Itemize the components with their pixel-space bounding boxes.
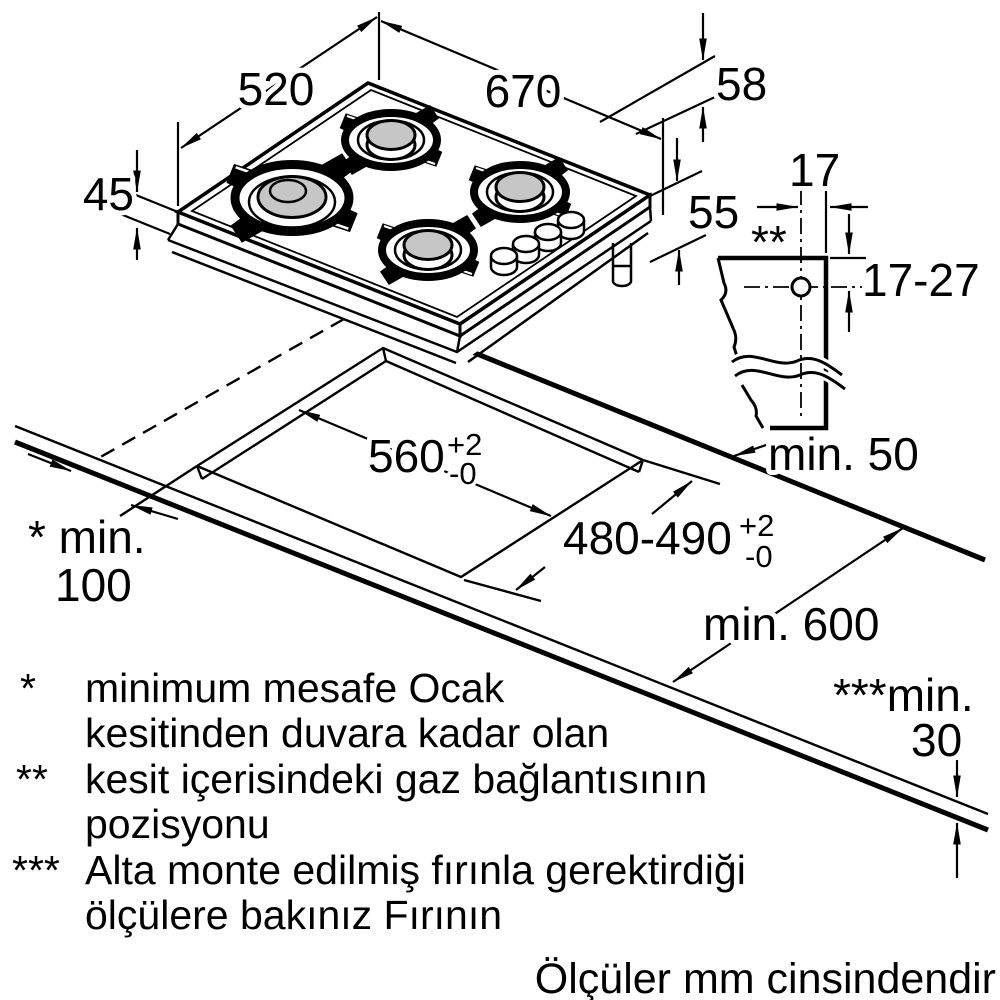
note-2-line-2: pozisyonu	[85, 801, 270, 847]
units-footer: Ölçüler mm cinsindendir	[535, 955, 996, 1000]
note-3-marker: ***	[12, 847, 60, 893]
cutout-right-extension-line	[643, 460, 720, 484]
label-hob-depth: 520	[238, 63, 315, 115]
label-wall-clearance-2: 100	[55, 559, 132, 611]
label-worktop-depth: min. 600	[703, 598, 879, 650]
label-edge-height: 58	[716, 58, 767, 110]
installation-diagram-page: 520 670 58 45 55 17 ** 17-27 min. 50 560…	[0, 0, 1000, 1000]
wall-projection-dashed-line	[97, 319, 344, 459]
label-glass-height: 45	[83, 168, 134, 220]
section-torn-edge	[718, 258, 763, 428]
label-cutout-depth: 480-490	[563, 512, 732, 564]
label-rear-clearance: min. 50	[768, 428, 919, 480]
dim-line-480-lower	[516, 567, 545, 590]
note-2-marker: **	[16, 756, 48, 802]
gas-connection-hole	[792, 278, 810, 296]
label-body-height: 55	[688, 186, 739, 238]
gas-connection-stub	[613, 243, 631, 286]
label-hob-width: 670	[485, 65, 562, 117]
label-cutout-width: 560	[368, 430, 445, 482]
label-cutout-depth-tol-up: +2	[739, 508, 774, 543]
note-3-line-2: ölçülere bakınız Fırının	[85, 892, 502, 938]
label-cutout-width-tol-down: -0	[449, 456, 477, 491]
label-wall-clearance-1: * min.	[28, 511, 146, 563]
note-2-line-1: kesit içerisindeki gaz bağlantısının	[85, 756, 707, 802]
label-oven-clearance-2: 30	[911, 714, 962, 766]
cutout-bottom-extension-line	[464, 580, 541, 601]
worktop-section-detail	[718, 160, 866, 428]
label-gas-marker: **	[751, 216, 787, 268]
hob-isometric	[168, 83, 651, 364]
label-cutout-depth-tol-down: -0	[745, 539, 773, 574]
knob-1	[491, 248, 517, 275]
note-1-marker: *	[20, 665, 36, 711]
note-1-line-2: kesitinden duvara kadar olan	[85, 710, 609, 756]
note-1-line-1: minimum mesafe Ocak	[85, 665, 505, 711]
label-gas-offset: 17	[789, 144, 840, 196]
label-gas-range: 17-27	[862, 254, 980, 306]
diagram-canvas: 520 670 58 45 55 17 ** 17-27 min. 50 560…	[0, 0, 1000, 1000]
dim-line-480-upper	[652, 481, 692, 514]
note-3-line-1: Alta monte edilmiş fırınla gerektirdiği	[85, 847, 746, 893]
